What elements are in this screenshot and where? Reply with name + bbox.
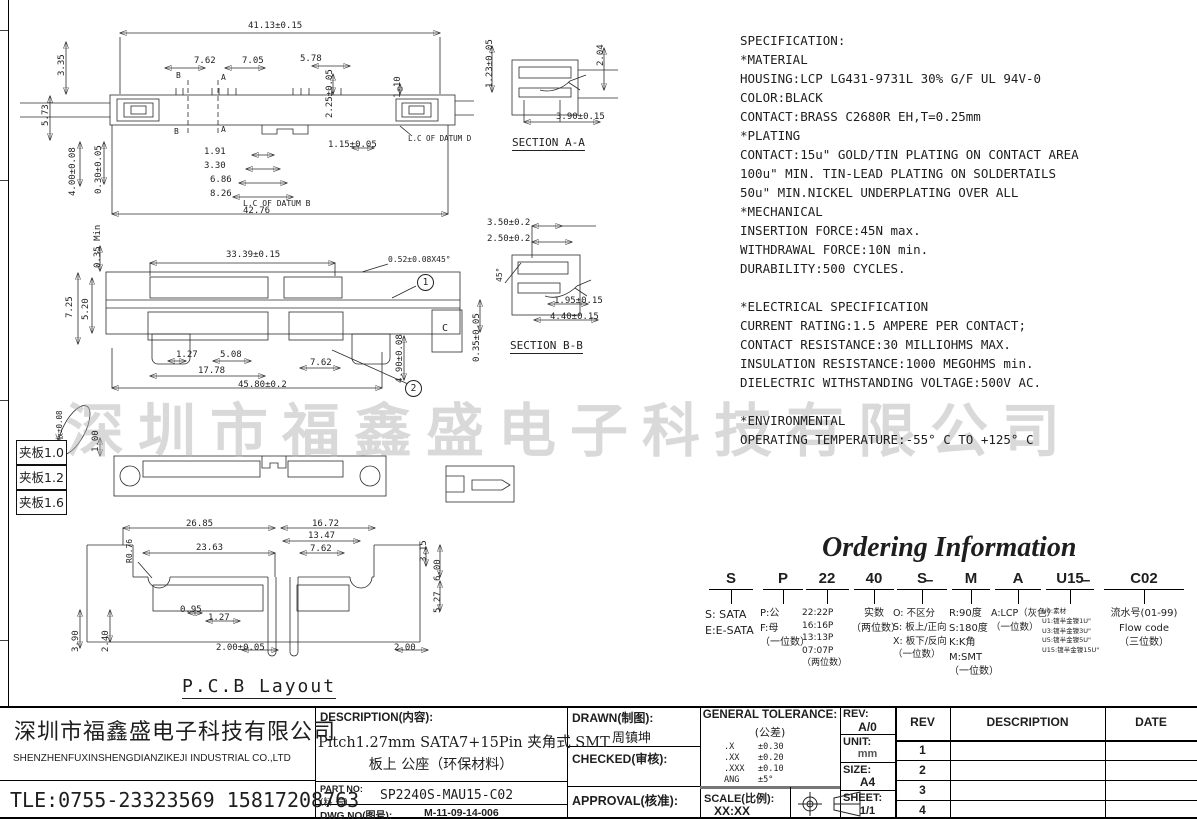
ordering-option: （两位数） — [802, 657, 852, 670]
ordering-option: Flow code — [1097, 622, 1191, 637]
ordering-option: U0:素材 — [1042, 607, 1098, 617]
ordering-column-realnum: 40 实数（两位数） — [851, 570, 897, 636]
unit-label: UNIT: — [843, 736, 871, 748]
spec-line: WITHDRAWAL FORCE:10N min. — [740, 242, 1079, 261]
rev-table-row-number: 3 — [895, 780, 950, 800]
ordering-code: 40 — [854, 570, 894, 590]
ordering-connector-line — [783, 590, 784, 604]
unit-value: mm — [840, 748, 895, 760]
ordering-column-gender: P P:公F:母（一位数） — [760, 570, 806, 651]
ordering-option: U15:镀半金镍15U" — [1042, 646, 1098, 656]
tolerance-row: ANG±5° — [724, 775, 784, 786]
scale-value: XX:XX — [714, 804, 750, 818]
clamp-label-1.0: 夹板1.0 — [16, 440, 67, 465]
spec-line: *ENVIRONMENTAL — [740, 413, 1079, 432]
ordering-code: S — [709, 570, 754, 590]
tolerance-subtitle: (公差) — [700, 724, 840, 740]
section-aa-caption: SECTION A-A — [512, 136, 585, 151]
dwg-no-label: DWG NO(图号): — [320, 807, 392, 819]
ordering-option: S: SATA — [705, 607, 757, 623]
ordering-connector-line — [827, 590, 828, 604]
spec-line: *MECHANICAL — [740, 204, 1079, 223]
drawn-value: 周镇坤 — [612, 727, 651, 746]
ordering-connector-line — [874, 590, 875, 604]
section-aa-linework — [492, 46, 618, 122]
pcb-layout-caption: P.C.B Layout — [182, 676, 336, 699]
frame-tick — [0, 30, 8, 31]
ordering-option: R:90度 — [949, 607, 993, 622]
ordering-option: 16:16P — [802, 620, 852, 633]
ordering-code: 22 — [806, 570, 849, 590]
spec-line — [740, 280, 1079, 299]
checked-label: CHECKED(审核): — [572, 750, 667, 767]
ordering-connector-line — [1144, 590, 1145, 604]
ordering-option: 22:22P — [802, 607, 852, 620]
tolerance-row: .XX±0.20 — [724, 753, 784, 764]
spec-line — [740, 394, 1079, 413]
clamp-label-1.2: 夹板1.2 — [16, 465, 67, 490]
ordering-column-series: S S: SATAE:E-SATA — [705, 570, 757, 639]
ordering-code: C02 — [1104, 570, 1185, 590]
titleblock-divider — [700, 706, 701, 819]
spec-line: OPERATING TEMPERATURE:-55° C TO +125° C — [740, 432, 1079, 451]
pcb-layout-linework — [80, 528, 440, 656]
ordering-option: 13:13P — [802, 632, 852, 645]
ordering-option: A:LCP（灰色） — [991, 607, 1045, 621]
rev-table-row-number: 4 — [895, 800, 950, 819]
ordering-option: U3:镀半金镍3U" — [1042, 627, 1098, 637]
company-cell-divider — [0, 780, 315, 781]
specification-block: SPECIFICATION:*MATERIALHOUSING:LCP LG431… — [740, 33, 1079, 451]
drawn-label: DRAWN(制图): — [572, 709, 653, 726]
section-bb-linework — [480, 226, 598, 332]
ordering-option: M:SMT — [949, 651, 993, 666]
tolerance-table: .X±0.30.XX±0.20.XXX±0.10ANG±5° — [724, 742, 784, 786]
ordering-code: P — [763, 570, 803, 590]
company-name-cn: 深圳市福鑫盛电子科技有限公司 — [14, 714, 336, 746]
ordering-option: 实数 — [851, 607, 897, 622]
spec-line: DIELECTRIC WITHSTANDING VOLTAGE:500V AC. — [740, 375, 1079, 394]
section-bb-caption: SECTION B-B — [510, 339, 583, 354]
frame-tick — [0, 640, 8, 641]
ordering-code: M — [952, 570, 990, 590]
spec-line: CONTACT RESISTANCE:30 MILLIOHMS MAX. — [740, 337, 1079, 356]
spec-line: COLOR:BLACK — [740, 90, 1079, 109]
rev-value: A/0 — [840, 720, 895, 734]
ordering-option: 流水号(01-99) — [1097, 607, 1191, 622]
rev-table-row-number: 2 — [895, 760, 950, 780]
spec-line: *ELECTRICAL SPECIFICATION — [740, 299, 1079, 318]
ordering-column-plating: U15 U0:素材U1:镀半金镍1U"U3:镀半金镍3U"U5:镀半金镍5U"U… — [1042, 570, 1098, 656]
callout-2: 2 — [405, 380, 422, 397]
rev-table-header-rev: REV — [895, 715, 950, 729]
dwg-no-value: M-11-09-14-006 — [424, 807, 499, 819]
ordering-connector-line — [971, 590, 972, 604]
titleblock-top-border — [0, 706, 1197, 708]
ordering-connector-line — [1070, 590, 1071, 604]
part-no-value: SP2240S-MAU15-C02 — [380, 788, 513, 803]
ordering-option: （三位数） — [1097, 636, 1191, 651]
ordering-option: U5:镀半金镍5U" — [1042, 636, 1098, 646]
ordering-column-orientation: S O: 不区分S: 板上/正向X: 板下/反向（一位数） — [893, 570, 951, 662]
approval-label: APPROVAL(核准): — [572, 790, 678, 809]
front-view-linework — [78, 246, 462, 388]
description-line-2: 板上 公座（环保材料） — [318, 754, 564, 774]
rev-table-row-number: 1 — [895, 740, 950, 760]
ordering-option: （一位数） — [760, 636, 806, 651]
spec-line: CURRENT RATING:1.5 AMPERE PER CONTACT; — [740, 318, 1079, 337]
frame-left-line — [8, 0, 9, 706]
top-view-linework — [20, 33, 474, 214]
ordering-option: O: 不区分 — [893, 607, 951, 621]
rev-table-rows: 1234 — [895, 740, 950, 819]
titleblock-divider — [567, 706, 568, 819]
description-cell-divider — [315, 781, 567, 782]
description-label: DESCRIPTION(内容): — [320, 709, 433, 725]
engineering-drawing-sheet: 深圳市福鑫盛电子科技有限公司 SPECIFICATION:*MATERIALHO… — [0, 0, 1197, 819]
tolerance-row: .X±0.30 — [724, 742, 784, 753]
company-name-en: SHENZHENFUXINSHENGDIANZIKEJI INDUSTRIAL … — [13, 753, 291, 764]
sheet-value: 1/1 — [840, 805, 895, 817]
tolerance-row: .XXX±0.10 — [724, 764, 784, 775]
rev-table-header-date: DATE — [1105, 715, 1197, 729]
ordering-column-mounting: M R:90度S:180度K:K角M:SMT（一位数） — [949, 570, 993, 680]
rev-table-header-description: DESCRIPTION — [950, 715, 1105, 729]
ordering-information-title: Ordering Information — [822, 532, 1076, 564]
ordering-option: K:K角 — [949, 636, 993, 651]
spec-line: *PLATING — [740, 128, 1079, 147]
unit-size-divider — [840, 762, 895, 763]
spec-line: CONTACT:BRASS C2680R EH,T=0.25mm — [740, 109, 1079, 128]
ordering-option: X: 板下/反向 — [893, 635, 951, 649]
spec-line: 50u" MIN.NICKEL UNDERPLATING OVER ALL — [740, 185, 1079, 204]
spec-line: INSULATION RESISTANCE:1000 MEGOHMS min. — [740, 356, 1079, 375]
tolerance-title: GENERAL TOLERANCE: — [700, 709, 840, 721]
ordering-code: U15 — [1046, 570, 1094, 590]
spec-line: HOUSING:LCP LG431-9731L 30% G/F UL 94V-0 — [740, 71, 1079, 90]
checked-cell-divider — [567, 786, 700, 787]
ordering-column-flowcode: C02 流水号(01-99)Flow code（三位数） — [1097, 570, 1191, 651]
ordering-option: （一位数） — [893, 648, 951, 662]
ordering-option: （一位数） — [991, 621, 1045, 635]
ordering-option: S: 板上/正向 — [893, 621, 951, 635]
spec-line: INSERTION FORCE:45N max. — [740, 223, 1079, 242]
description-line-1: Pitch1.27mm SATA7+15Pin 夹角式 SMT — [318, 731, 564, 752]
ordering-option: S:180度 — [949, 622, 993, 637]
ordering-option: U1:镀半金镍1U" — [1042, 617, 1098, 627]
ordering-column-material: A A:LCP（灰色）（一位数） — [991, 570, 1045, 635]
ordering-option: （一位数） — [949, 665, 993, 680]
ordering-option: F:母 — [760, 622, 806, 637]
frame-tick — [0, 400, 8, 401]
ordering-column-pincount: 22 22:22P16:16P13:13P07:07P（两位数） — [802, 570, 852, 670]
ordering-connector-line — [731, 590, 732, 604]
rev-unit-divider — [840, 734, 895, 735]
spec-line: 100u" MIN. TIN-LEAD PLATING ON SOLDERTAI… — [740, 166, 1079, 185]
spec-line: DURABILITY:500 CYCLES. — [740, 261, 1079, 280]
clamp-label-1.6: 夹板1.6 — [16, 490, 67, 515]
ordering-connector-line — [922, 590, 923, 604]
ordering-option: 07:07P — [802, 645, 852, 658]
spec-line: *MATERIAL — [740, 52, 1079, 71]
part-no-label: PART NO: — [320, 784, 363, 794]
ordering-option: P:公 — [760, 607, 806, 622]
ordering-connector-line — [1018, 590, 1019, 604]
rev-label: REV: — [843, 708, 869, 720]
callout-1: 1 — [417, 274, 434, 291]
spec-line: SPECIFICATION: — [740, 33, 1079, 52]
frame-tick — [0, 180, 8, 181]
spec-line: CONTACT:15u" GOLD/TIN PLATING ON CONTACT… — [740, 147, 1079, 166]
size-value: A4 — [840, 775, 895, 789]
ordering-option: （两位数） — [851, 622, 897, 637]
sheet-label: SHEET: — [843, 792, 882, 804]
ordering-code: S — [897, 570, 947, 590]
ordering-code: A — [995, 570, 1041, 590]
scale-symbol-divider — [790, 787, 791, 819]
ordering-option: E:E-SATA — [705, 623, 757, 639]
company-phone: TLE:0755-23323569 15817208763 — [10, 788, 359, 812]
